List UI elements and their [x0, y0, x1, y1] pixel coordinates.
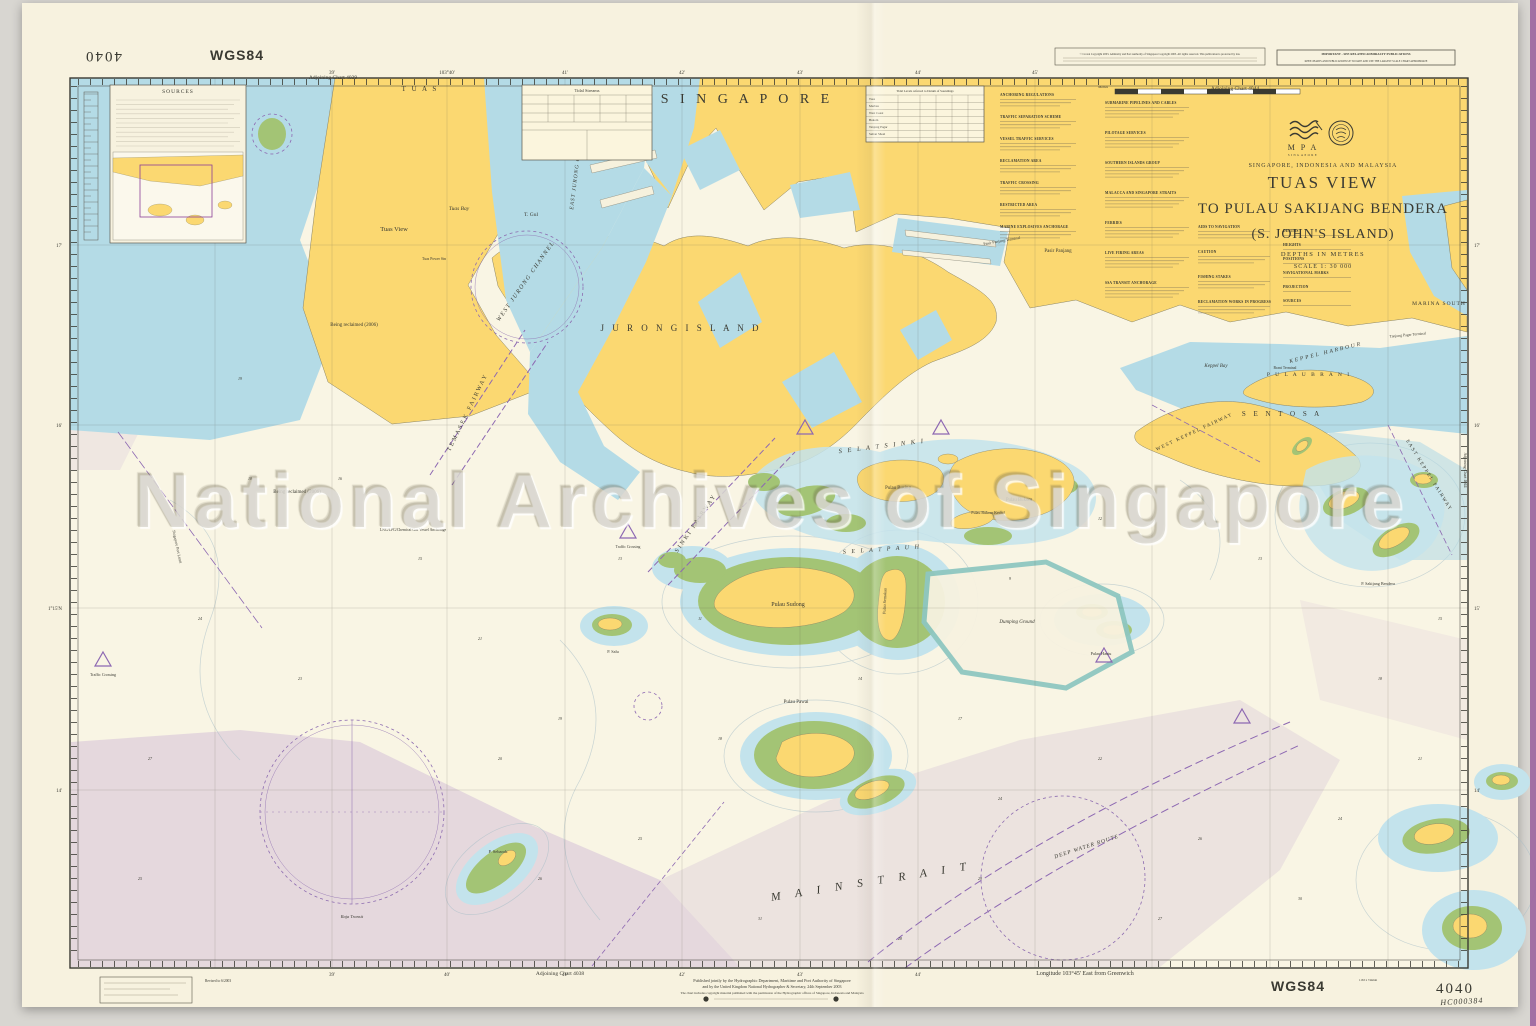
- note-heading-southern-islands-group: SOUTHERN ISLANDS GROUP: [1105, 161, 1161, 165]
- sources-title: SOURCES: [162, 89, 194, 95]
- map-label-pulau-hantu: Pulau Hantu: [1091, 651, 1113, 656]
- sounding-depth: 13: [618, 556, 622, 561]
- map-label-j-u-r-o-n-g-i-s-l-a-n-d: J U R O N G I S L A N D: [601, 323, 762, 333]
- note-heading-malacca-and-singapore-straits: MALACCA AND SINGAPORE STRAITS: [1105, 191, 1176, 195]
- map-label-s-e-n-t-o-s-a: S E N T O S A: [1242, 410, 1322, 418]
- certification-logo-icon: [833, 996, 838, 1001]
- sounding-depth: 12: [1098, 516, 1102, 521]
- latitude-label: 16': [1474, 424, 1480, 429]
- dimensions-note: 1163 x 744mm: [1359, 978, 1378, 982]
- sounding-depth: 18: [718, 736, 722, 741]
- tidal-station-tanjong-pagar: Tanjong Pagar: [869, 125, 888, 129]
- sounding-depth: 15: [418, 556, 422, 561]
- note-heading-reclamation-works-in-progress: RECLAMATION WORKS IN PROGRESS: [1198, 300, 1271, 304]
- map-label-tuas-view: Tuas View: [380, 226, 408, 233]
- note-heading-ssa-transit-anchorage: SSA TRANSIT ANCHORAGE: [1105, 281, 1157, 285]
- certification-logo-icon: [703, 996, 708, 1001]
- sounding-depth: 9: [1009, 576, 1011, 581]
- mpa-sub-label: SINGAPORE: [1288, 153, 1318, 157]
- map-label-tuas-power-stn: Tuas Power Stn: [422, 257, 446, 261]
- latitude-label: 1°15'N: [48, 607, 62, 612]
- tidal-levels-title: Tidal Levels referred to Datum of Soundi…: [896, 89, 954, 93]
- longitude-label: 42': [679, 71, 685, 76]
- archive-reference-handwritten: HC000384: [1439, 996, 1484, 1007]
- important-notice-title: IMPORTANT - SEE RELATED ADMIRALTY PUBLIC…: [1321, 52, 1410, 56]
- sounding-depth: 18: [1378, 676, 1382, 681]
- note-heading-anchoring-regulations: ANCHORING REGULATIONS: [1000, 93, 1054, 97]
- chart-number-bottom-right: 4040: [1436, 981, 1474, 997]
- latitude-label: 16': [56, 424, 62, 429]
- title-line3: (S. JOHN'S ISLAND): [1251, 227, 1394, 242]
- note-heading-traffic-separation-scheme: TRAFFIC SEPARATION SCHEME: [1000, 115, 1062, 119]
- map-label-pasir-panjang: Pasir Panjang: [1044, 249, 1072, 254]
- longitude-label: 42': [679, 973, 685, 978]
- sounding-depth: 26: [538, 876, 542, 881]
- sounding-depth: 24: [198, 616, 202, 621]
- copyright-notice: © Crown Copyright 2003. Admiralty and Po…: [1080, 53, 1241, 56]
- map-label-p-salu: P. Salu: [607, 649, 619, 654]
- sounding-depth: 28: [898, 936, 902, 941]
- map-label-pulau-busing: Pulau Busing: [885, 486, 911, 491]
- sounding-depth: 23: [298, 676, 302, 681]
- note-heading-reclamation-area: RECLAMATION AREA: [1000, 159, 1042, 163]
- tidal-station-merbau: Merbau: [869, 104, 879, 108]
- adjoining-bottom-left: Adjoining Chart 4038: [536, 971, 585, 977]
- publication-line2: and by the United Kingdom National Hydro…: [702, 984, 841, 990]
- latitude-label: 15': [1474, 607, 1480, 612]
- nautical-chart: 2218242715211925312824222630181512911131…: [0, 0, 1536, 1026]
- note-heading-vessel-traffic-services: VESSEL TRAFFIC SERVICES: [1000, 137, 1054, 141]
- note-heading-submarine-pipelines-and-cables: SUBMARINE PIPELINES AND CABLES: [1105, 101, 1177, 105]
- latitude-label: 14': [1474, 789, 1480, 794]
- sounding-depth: 16: [338, 476, 342, 481]
- longitude-label: 44': [915, 973, 921, 978]
- map-label-brani-terminal: Brani Terminal: [1274, 366, 1297, 370]
- map-label-dumping-ground: Dumping Ground: [998, 620, 1035, 625]
- note-heading-live-firing-areas: LIVE FIRING AREAS: [1105, 251, 1144, 255]
- longitude-label: 41': [562, 71, 568, 76]
- svg-text:Metres: Metres: [1098, 85, 1108, 89]
- note-heading-restricted-area: RESTRICTED AREA: [1000, 203, 1037, 207]
- note-heading-ferries: FERRIES: [1105, 221, 1122, 225]
- sounding-depth: 25: [638, 836, 642, 841]
- title-line1: TUAS VIEW: [1268, 173, 1379, 192]
- tidal-streams-title: Tidal Streams: [575, 88, 600, 93]
- sounding-depth: 14: [858, 676, 862, 681]
- tidal-streams-table: Tidal Streams: [522, 85, 652, 160]
- note-heading-heights: HEIGHTS: [1283, 243, 1301, 247]
- datum-bottom-right: WGS84: [1271, 978, 1325, 994]
- note-heading-pilotage-services: PILOTAGE SERVICES: [1105, 131, 1146, 135]
- tidal-levels-table: Tidal Levels referred to Datum of Soundi…: [866, 86, 984, 142]
- map-label-pulau-bukom-kechil: Pulau Bukom Kechil: [971, 510, 1005, 515]
- title-region: SINGAPORE, INDONESIA AND MALAYSIA: [1249, 163, 1398, 169]
- map-label-tuas-bay: Tuas Bay: [449, 206, 470, 212]
- note-heading-aids-to-navigation: AIDS TO NAVIGATION: [1198, 225, 1240, 229]
- sounding-depth: 19: [238, 376, 242, 381]
- chart-photo: 2218242715211925312824222630181512911131…: [0, 0, 1536, 1026]
- note-heading-sources: SOURCES: [1283, 299, 1301, 303]
- adjoining-right: Adjoining Chart 4044: [1463, 452, 1468, 487]
- longitude-note: Longitude 103°45' East from Greenwich: [1036, 970, 1133, 977]
- map-label-marina-south: MARINA SOUTH: [1412, 301, 1466, 307]
- map-label-raja-transit: Raja Transit: [340, 914, 364, 919]
- map-label-keppel-bay: Keppel Bay: [1203, 364, 1228, 369]
- note-heading-caution: CAUTION: [1198, 250, 1217, 254]
- publication-line3: The chart includes copyright material pu…: [681, 991, 864, 996]
- map-label-pulau-pawai: Pulau Pawai: [784, 700, 809, 705]
- note-heading-marine-explosives-anchorage: MARINE EXPLOSIVES ANCHORAGE: [1000, 225, 1069, 229]
- map-label-pulau-sudong: Pulau Sudong: [771, 602, 805, 608]
- map-label-s-i-n-g-a-p-o-r-e: S I N G A P O R E: [661, 92, 834, 107]
- sounding-depth: 31: [758, 916, 762, 921]
- datum-top-left: WGS84: [210, 47, 264, 63]
- map-label-lng-lpg-chemical-gas-vessel-anchorage: LNG/LPG/Chemical Gas Vessel Anchorage: [380, 528, 447, 532]
- sounding-depth: 21: [478, 636, 482, 641]
- longitude-label: 43': [797, 71, 803, 76]
- sounding-depth: 19: [558, 716, 562, 721]
- latitude-label: 17': [56, 244, 62, 249]
- title-depths: DEPTHS IN METRES: [1281, 251, 1365, 258]
- longitude-label: 45': [1032, 71, 1038, 76]
- tidal-station-bukom: Bukom: [869, 118, 879, 122]
- map-label-p-sebarok: P. Sebarok: [489, 849, 509, 854]
- sounding-depth: 24: [1338, 816, 1342, 821]
- adjoining-top-left: Adjoining Chart 4039: [309, 75, 358, 81]
- latitude-label: 14': [56, 789, 62, 794]
- note-heading-fishing-stakes: FISHING STAKES: [1198, 275, 1231, 279]
- note-heading-projection: PROJECTION: [1283, 285, 1309, 289]
- sounding-depth: 15: [1438, 616, 1442, 621]
- longitude-label: 103°40': [439, 71, 454, 76]
- note-heading-navigational-marks: NAVIGATIONAL MARKS: [1283, 271, 1329, 275]
- map-label-t-gul: T. Gul: [524, 212, 538, 218]
- mpa-label: M P A: [1288, 143, 1319, 152]
- sounding-depth: 29: [978, 876, 982, 881]
- tidal-station-west-coast: West Coast: [869, 111, 883, 115]
- note-heading-traffic-crossing: TRAFFIC CROSSING: [1000, 181, 1039, 185]
- sounding-depth: 11: [698, 616, 702, 621]
- longitude-label: 44': [915, 71, 921, 76]
- sounding-depth: 18: [248, 476, 252, 481]
- photo-edge-strip: [1530, 0, 1536, 1026]
- sounding-depth: 24: [998, 796, 1002, 801]
- title-scale: SCALE 1: 30 000: [1294, 264, 1352, 270]
- map-label-traffic-crossing: Traffic Crossing: [616, 545, 641, 549]
- sounding-depth: 22: [1098, 756, 1102, 761]
- sounding-depth: 20: [498, 756, 502, 761]
- important-notice-body: KEEP CHARTS AND PUBLICATIONS UP TO DATE …: [1305, 60, 1428, 63]
- longitude-label: 40': [444, 973, 450, 978]
- revision-note: Revised to 6/2003: [205, 979, 231, 983]
- map-label-p-sakijang-bendera: P. Sakijang Bendera: [1361, 581, 1395, 586]
- map-label-pulau-bukom: Pulau Bukom: [1006, 498, 1033, 503]
- map-label-pulau-semakau: Pulau Semakau: [882, 587, 888, 614]
- latitude-label: 17': [1474, 244, 1480, 249]
- sounding-depth: 25: [138, 876, 142, 881]
- sounding-depth: 13: [1258, 556, 1262, 561]
- sounding-depth: 30: [1298, 896, 1302, 901]
- sounding-depth: 21: [1418, 756, 1422, 761]
- map-label-being-reclaimed-2006: Being reclaimed (2006): [273, 490, 321, 495]
- map-label-p-u-l-a-u-b-r-a-n-i: P U L A U B R A N I: [1267, 372, 1351, 378]
- sounding-depth: 26: [1198, 836, 1202, 841]
- tidal-station-tuas: Tuas: [869, 97, 876, 101]
- tidal-station-sultan-shoal: Sultan Shoal: [869, 132, 885, 136]
- title-line2: TO PULAU SAKIJANG BENDERA: [1198, 201, 1448, 217]
- chart-number-top-left: 4040: [84, 48, 122, 64]
- map-label-being-reclaimed-2006: Being reclaimed (2006): [330, 323, 378, 328]
- adjoining-top-right: Adjoining Chart 4044: [1211, 86, 1260, 92]
- longitude-label: 39': [329, 973, 335, 978]
- map-label-traffic-crossing: Traffic Crossing: [90, 672, 116, 677]
